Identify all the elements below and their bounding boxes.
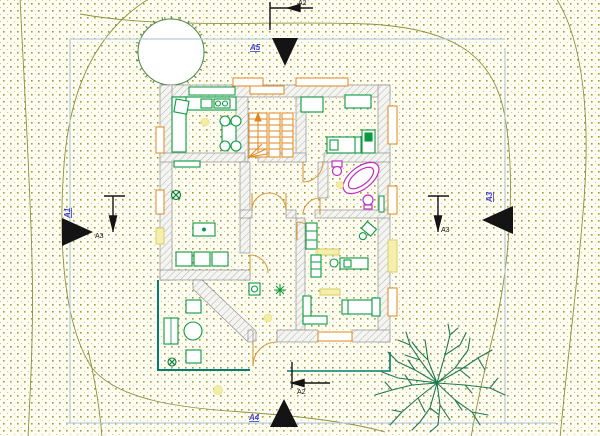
- wardrobe-icon: [301, 97, 323, 112]
- site-plan-canvas: A2 A5 A2 A4 A3 A1: [0, 0, 600, 436]
- window-left-1: [156, 127, 164, 153]
- shelf-yellow-1: [317, 249, 339, 255]
- elevation-label-a3: A3: [485, 191, 494, 203]
- plant-icon: [172, 191, 181, 200]
- cabinet-icon: [306, 223, 317, 249]
- window-left-3: [156, 228, 164, 244]
- window-right-4: [388, 288, 397, 316]
- terrace-plant-icon: [168, 358, 176, 366]
- window-stair-top: [250, 86, 284, 94]
- window-right-2: [388, 186, 397, 214]
- terrace-chair-2: [186, 350, 201, 363]
- window-box-top-1: [233, 78, 263, 86]
- section-label-left: A3: [95, 233, 104, 240]
- elevation-label-a1: A1: [63, 207, 72, 219]
- terrace-chair-1: [186, 300, 201, 313]
- office-bed-icon: [342, 298, 380, 316]
- shelf-yellow-2: [320, 289, 340, 295]
- toilet-icon: [332, 161, 342, 176]
- radiator-icon: [174, 161, 200, 167]
- terrace-table-icon: [184, 322, 202, 340]
- coffee-table-icon: [193, 223, 215, 236]
- section-label-bottom: A2: [297, 389, 306, 396]
- section-label-right: A3: [441, 227, 450, 234]
- tall-cabinet-icon: [311, 255, 321, 277]
- window-bath: [379, 196, 384, 212]
- section-label-top: A2: [298, 0, 307, 7]
- stove-icon: [201, 99, 212, 108]
- elevation-label-a4: A4: [248, 413, 260, 422]
- ceiling-light-hall: [264, 314, 272, 322]
- sideboard-icons: [176, 252, 228, 266]
- ceiling-light-kitchen: [201, 118, 209, 126]
- bed-icon: [327, 137, 361, 153]
- stairwell: [249, 113, 293, 157]
- window-right-1: [388, 106, 397, 144]
- elevation-label-a5: A5: [249, 43, 261, 52]
- window-left-2: [156, 190, 164, 214]
- window-kitchen-top: [189, 87, 235, 95]
- site-plan-drawing: A2 A5 A2 A4 A3 A1: [0, 0, 600, 436]
- window-box-top-2: [296, 78, 348, 86]
- washbasin-icon: [363, 195, 373, 209]
- kitchen-sink-icon: [174, 99, 189, 114]
- window-right-3: [388, 240, 397, 272]
- window-bottom: [318, 332, 352, 341]
- garden-light: [214, 386, 223, 395]
- tree-crown-circle: [137, 18, 206, 87]
- ceiling-light-bath: [337, 182, 344, 189]
